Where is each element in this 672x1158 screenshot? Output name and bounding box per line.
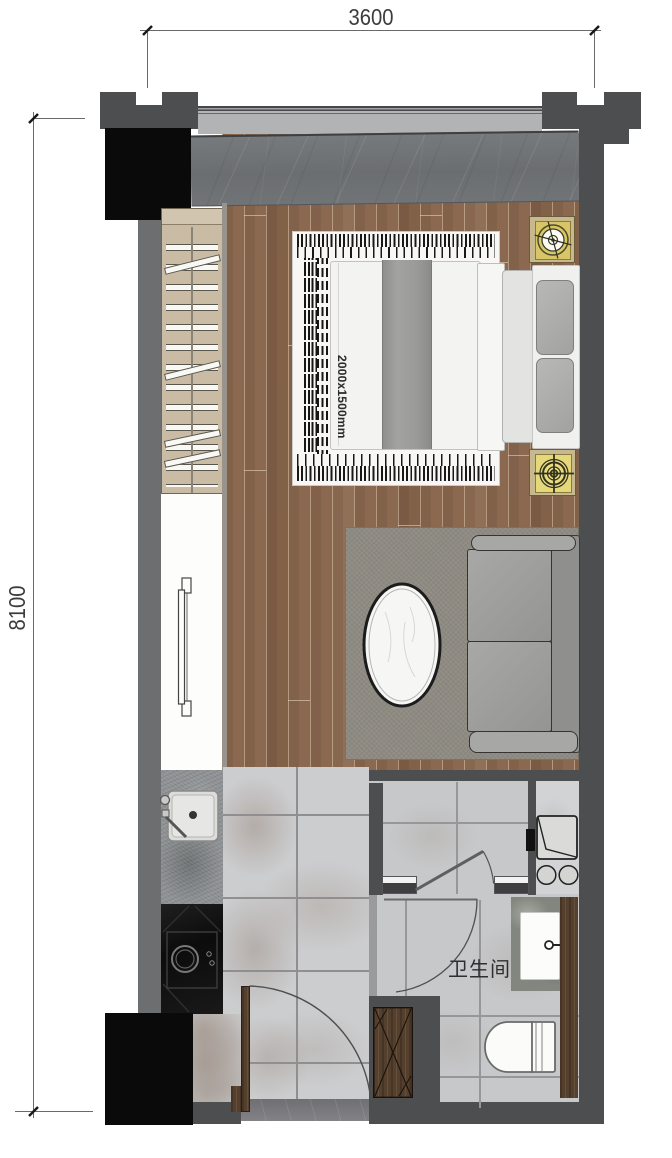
svg-text:8100: 8100 [4, 585, 31, 630]
svg-text:3600: 3600 [348, 4, 393, 31]
